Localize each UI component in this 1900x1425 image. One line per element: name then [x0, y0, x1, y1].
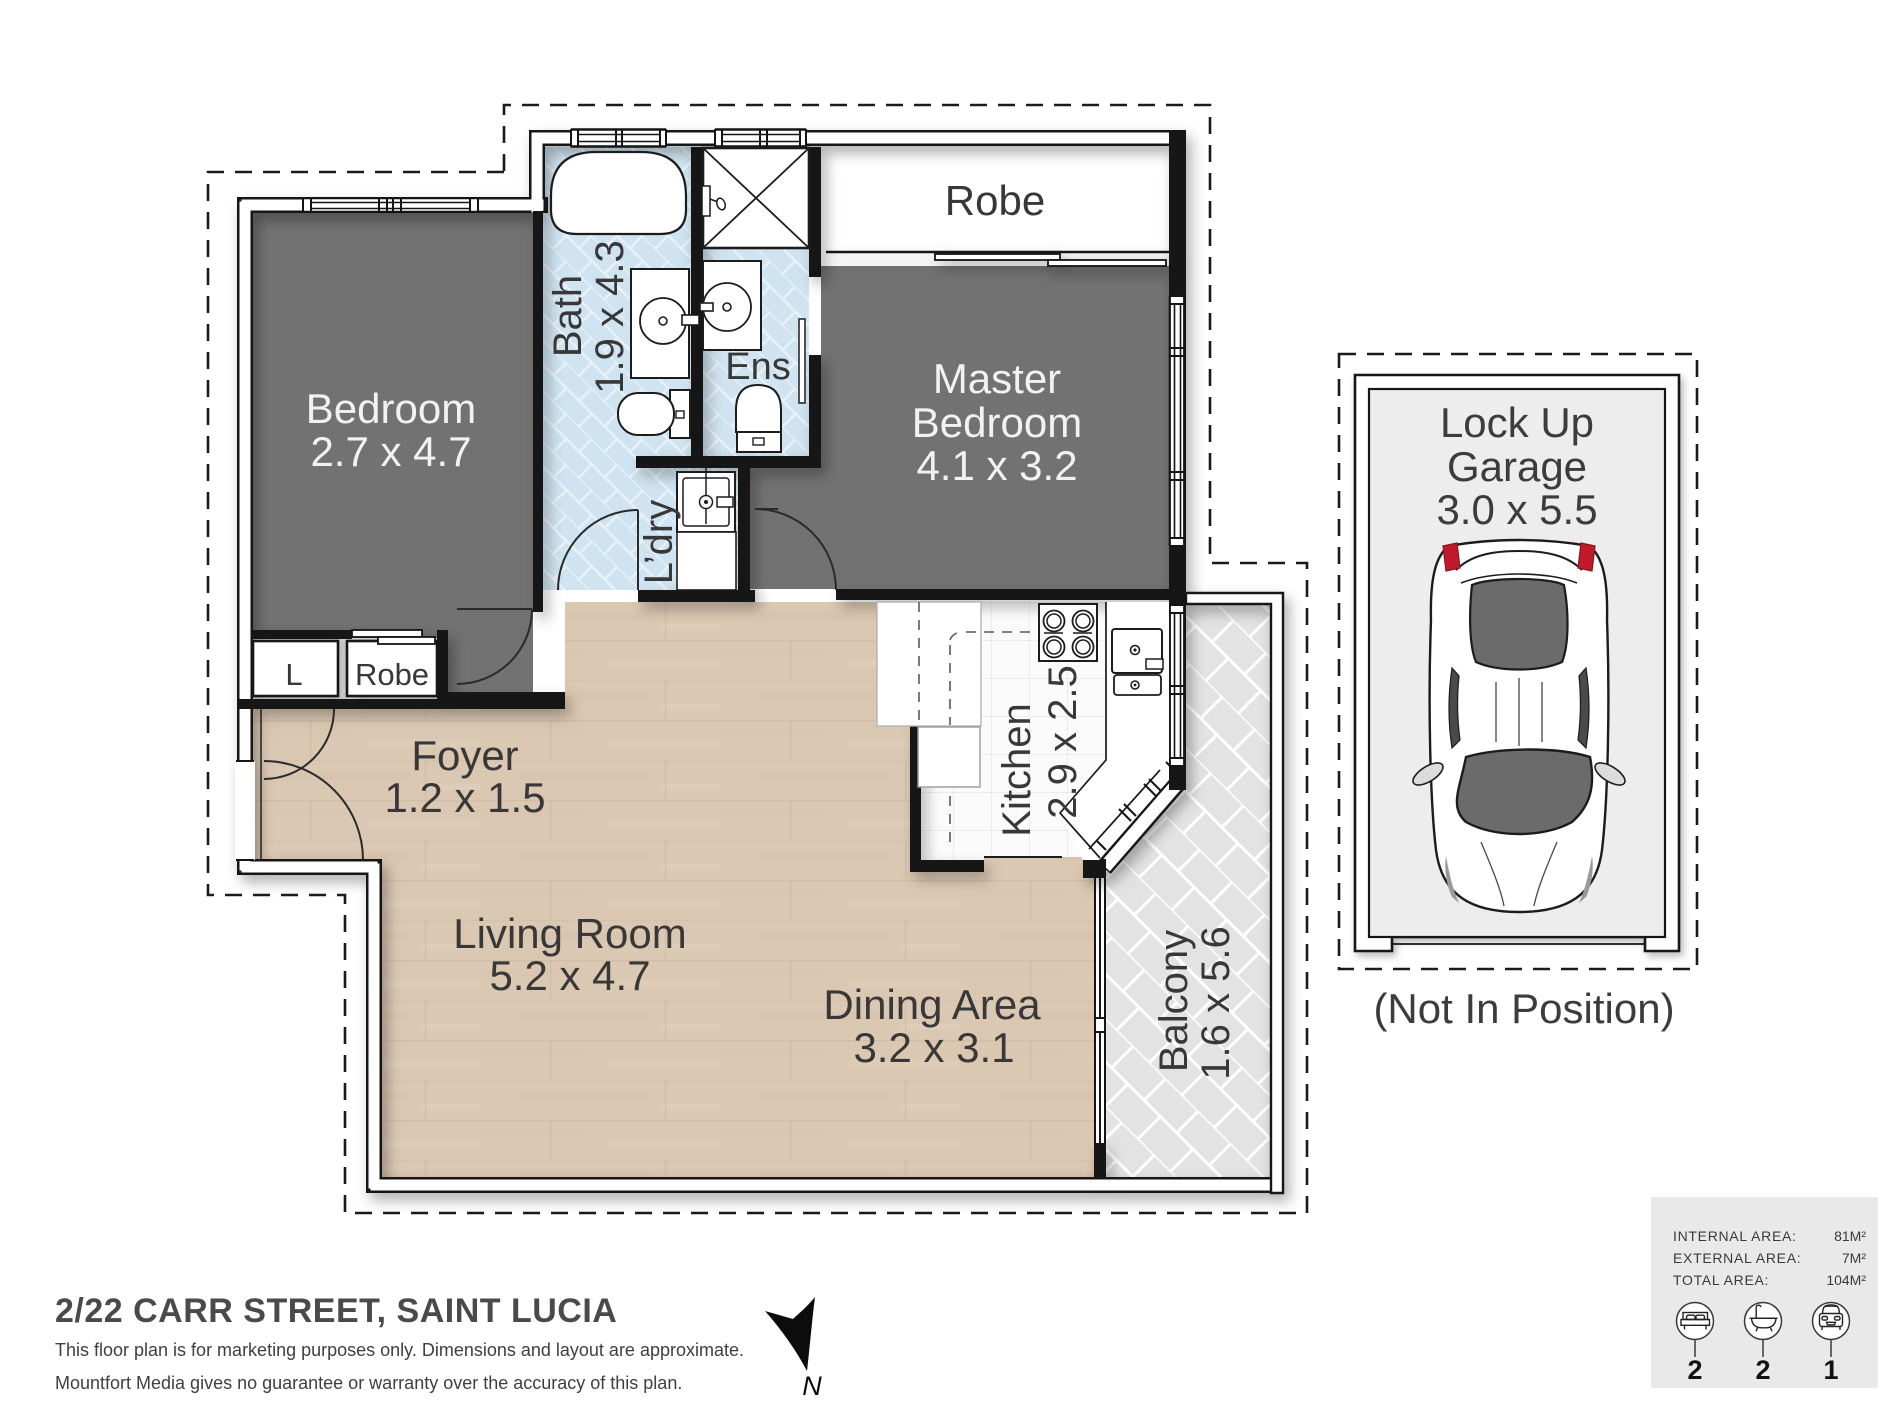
svg-text:Dining Area: Dining Area: [823, 981, 1041, 1028]
svg-text:Bath: Bath: [546, 275, 590, 357]
svg-text:Ens: Ens: [725, 346, 790, 388]
svg-text:1.9 x 4.3: 1.9 x 4.3: [588, 240, 632, 393]
svg-text:This floor plan is for marketi: This floor plan is for marketing purpose…: [55, 1340, 744, 1360]
svg-text:1.2 x 1.5: 1.2 x 1.5: [384, 774, 545, 821]
svg-text:Foyer: Foyer: [411, 732, 518, 779]
svg-text:5.2 x 4.7: 5.2 x 4.7: [489, 952, 650, 999]
svg-text:EXTERNAL AREA:: EXTERNAL AREA:: [1673, 1250, 1801, 1266]
svg-text:INTERNAL AREA:: INTERNAL AREA:: [1673, 1228, 1797, 1244]
svg-text:104M²: 104M²: [1826, 1272, 1866, 1288]
svg-text:L’dry: L’dry: [637, 500, 681, 585]
svg-text:(Not In Position): (Not In Position): [1373, 985, 1674, 1032]
svg-text:Robe: Robe: [945, 177, 1045, 224]
svg-text:7M²: 7M²: [1842, 1250, 1866, 1266]
svg-text:Robe: Robe: [355, 657, 429, 692]
svg-text:2: 2: [1755, 1355, 1770, 1385]
svg-text:1: 1: [1823, 1355, 1838, 1385]
svg-text:N: N: [802, 1371, 822, 1401]
svg-text:2.7 x 4.7: 2.7 x 4.7: [310, 428, 471, 475]
svg-text:4.1 x 3.2: 4.1 x 3.2: [916, 442, 1077, 489]
svg-text:3.0 x 5.5: 3.0 x 5.5: [1436, 486, 1597, 533]
svg-text:Master: Master: [933, 355, 1061, 402]
svg-text:Bedroom: Bedroom: [306, 385, 476, 432]
svg-text:2.9 x 2.5: 2.9 x 2.5: [1041, 665, 1085, 818]
svg-text:1.6 x 5.6: 1.6 x 5.6: [1194, 926, 1238, 1079]
svg-text:Mountfort Media gives no guara: Mountfort Media gives no guarantee or wa…: [55, 1373, 682, 1393]
svg-text:81M²: 81M²: [1834, 1228, 1866, 1244]
svg-text:2/22 CARR STREET, SAINT LUCIA: 2/22 CARR STREET, SAINT LUCIA: [55, 1292, 617, 1330]
svg-text:Kitchen: Kitchen: [995, 703, 1039, 836]
svg-text:TOTAL AREA:: TOTAL AREA:: [1673, 1272, 1769, 1288]
svg-text:Lock Up: Lock Up: [1440, 399, 1594, 446]
svg-text:2: 2: [1687, 1355, 1702, 1385]
svg-text:L: L: [285, 657, 302, 692]
svg-text:3.2 x 3.1: 3.2 x 3.1: [853, 1024, 1014, 1071]
svg-text:Balcony: Balcony: [1152, 930, 1196, 1072]
svg-text:Living Room: Living Room: [453, 910, 686, 957]
svg-text:Garage: Garage: [1447, 443, 1587, 490]
svg-text:Bedroom: Bedroom: [912, 399, 1082, 446]
